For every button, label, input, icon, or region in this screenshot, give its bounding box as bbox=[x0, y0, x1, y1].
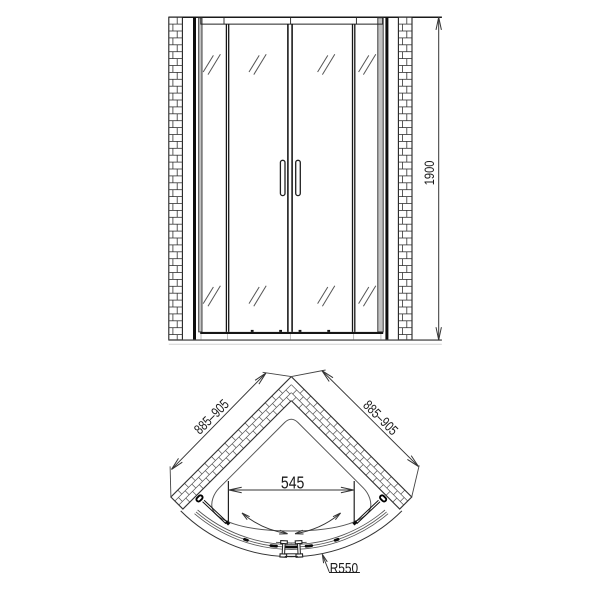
svg-text:545: 545 bbox=[281, 474, 305, 493]
svg-text:1900: 1900 bbox=[422, 161, 437, 186]
svg-text:R550: R550 bbox=[330, 560, 358, 576]
